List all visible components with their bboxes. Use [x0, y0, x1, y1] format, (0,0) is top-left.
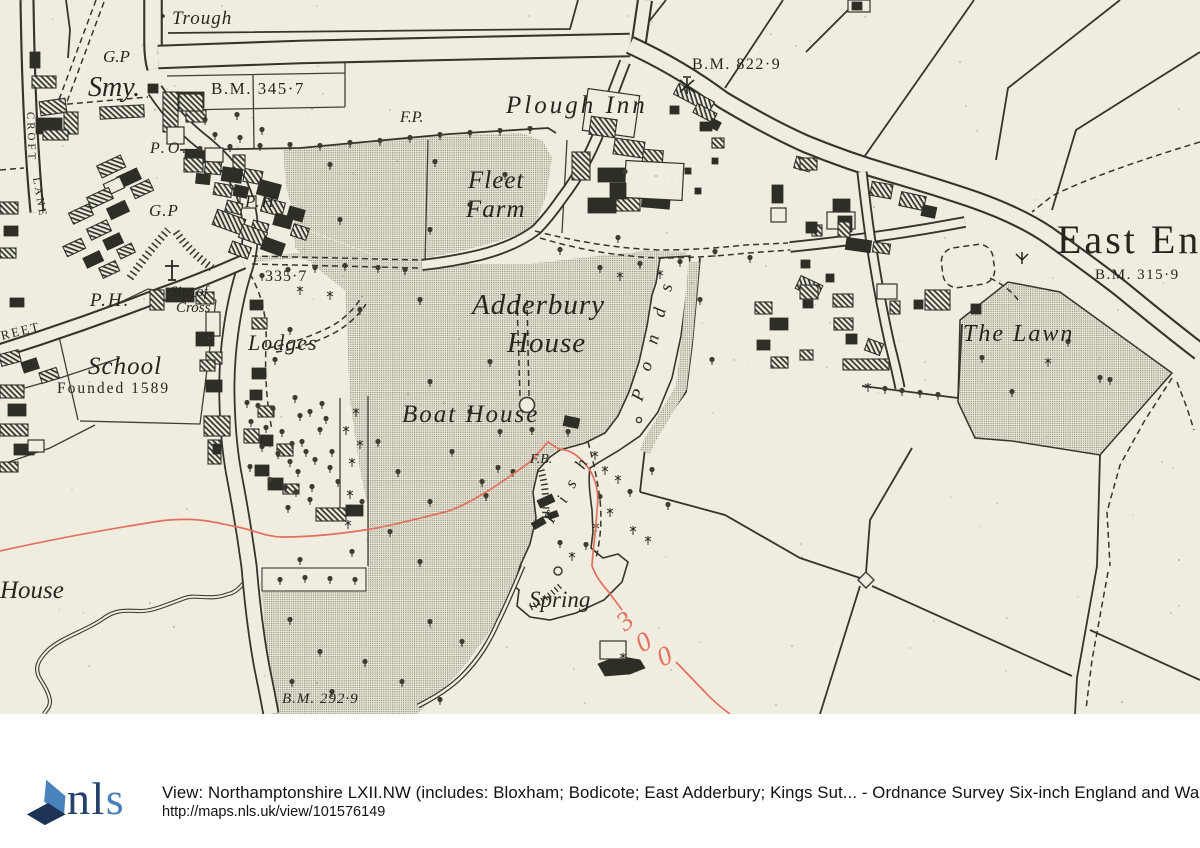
svg-text:F.P.: F.P.: [399, 109, 423, 126]
svg-text:P.O.: P.O.: [149, 140, 189, 157]
svg-text:East End: East End: [1057, 217, 1200, 262]
svg-text:nls: nls: [67, 773, 125, 824]
svg-text:Founded 1589: Founded 1589: [57, 380, 170, 397]
svg-text:Farm: Farm: [465, 196, 526, 223]
svg-text:G.P: G.P: [103, 47, 130, 66]
svg-text:F.B.: F.B.: [529, 452, 552, 467]
svg-text:P.H.: P.H.: [89, 290, 130, 311]
svg-text:School: School: [88, 353, 162, 380]
svg-text:http://maps.nls.uk/view/101576: http://maps.nls.uk/view/101576149: [162, 804, 385, 820]
svg-text:Spring: Spring: [529, 587, 590, 612]
svg-text:B.M. 315·9: B.M. 315·9: [1095, 267, 1180, 283]
svg-text:Adderbury: Adderbury: [470, 289, 605, 321]
svg-text:P.H: P.H: [244, 192, 276, 211]
svg-text:Cross: Cross: [176, 300, 211, 316]
svg-text:House: House: [0, 577, 64, 604]
svg-text:Fleet: Fleet: [467, 167, 524, 194]
svg-text:Boat House: Boat House: [402, 401, 539, 428]
svg-text:House: House: [506, 327, 586, 359]
svg-text:Smy.: Smy.: [88, 72, 140, 103]
svg-text:Site of: Site of: [170, 284, 210, 300]
svg-text:View: Northamptonshire LXII.NW: View: Northamptonshire LXII.NW (includes…: [162, 783, 1200, 802]
svg-text:The Lawn: The Lawn: [963, 321, 1074, 347]
svg-text:CROFT: CROFT: [24, 112, 38, 163]
svg-text:335·7: 335·7: [265, 268, 307, 285]
svg-text:Plough Inn: Plough Inn: [505, 92, 648, 119]
svg-text:Trough: Trough: [172, 8, 232, 29]
svg-text:G.P: G.P: [149, 201, 179, 220]
svg-text:B.M. 292·9: B.M. 292·9: [282, 691, 359, 707]
svg-text:B.M. 345·7: B.M. 345·7: [211, 79, 305, 98]
svg-text:Lodges: Lodges: [247, 330, 318, 355]
svg-text:B.M. 822·9: B.M. 822·9: [692, 56, 781, 73]
